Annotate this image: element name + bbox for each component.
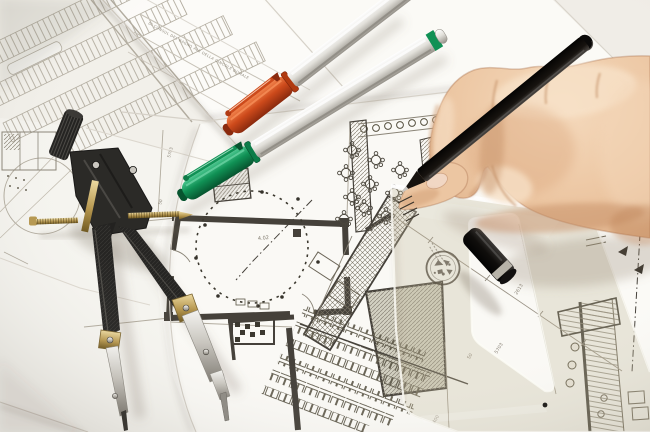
vignette xyxy=(0,0,650,432)
photo-canvas: DI CONSUL DEL BAGNO ALB DELLA GINCOLE DO… xyxy=(0,0,650,432)
photo-architect-desk: DI CONSUL DEL BAGNO ALB DELLA GINCOLE DO… xyxy=(0,0,650,432)
